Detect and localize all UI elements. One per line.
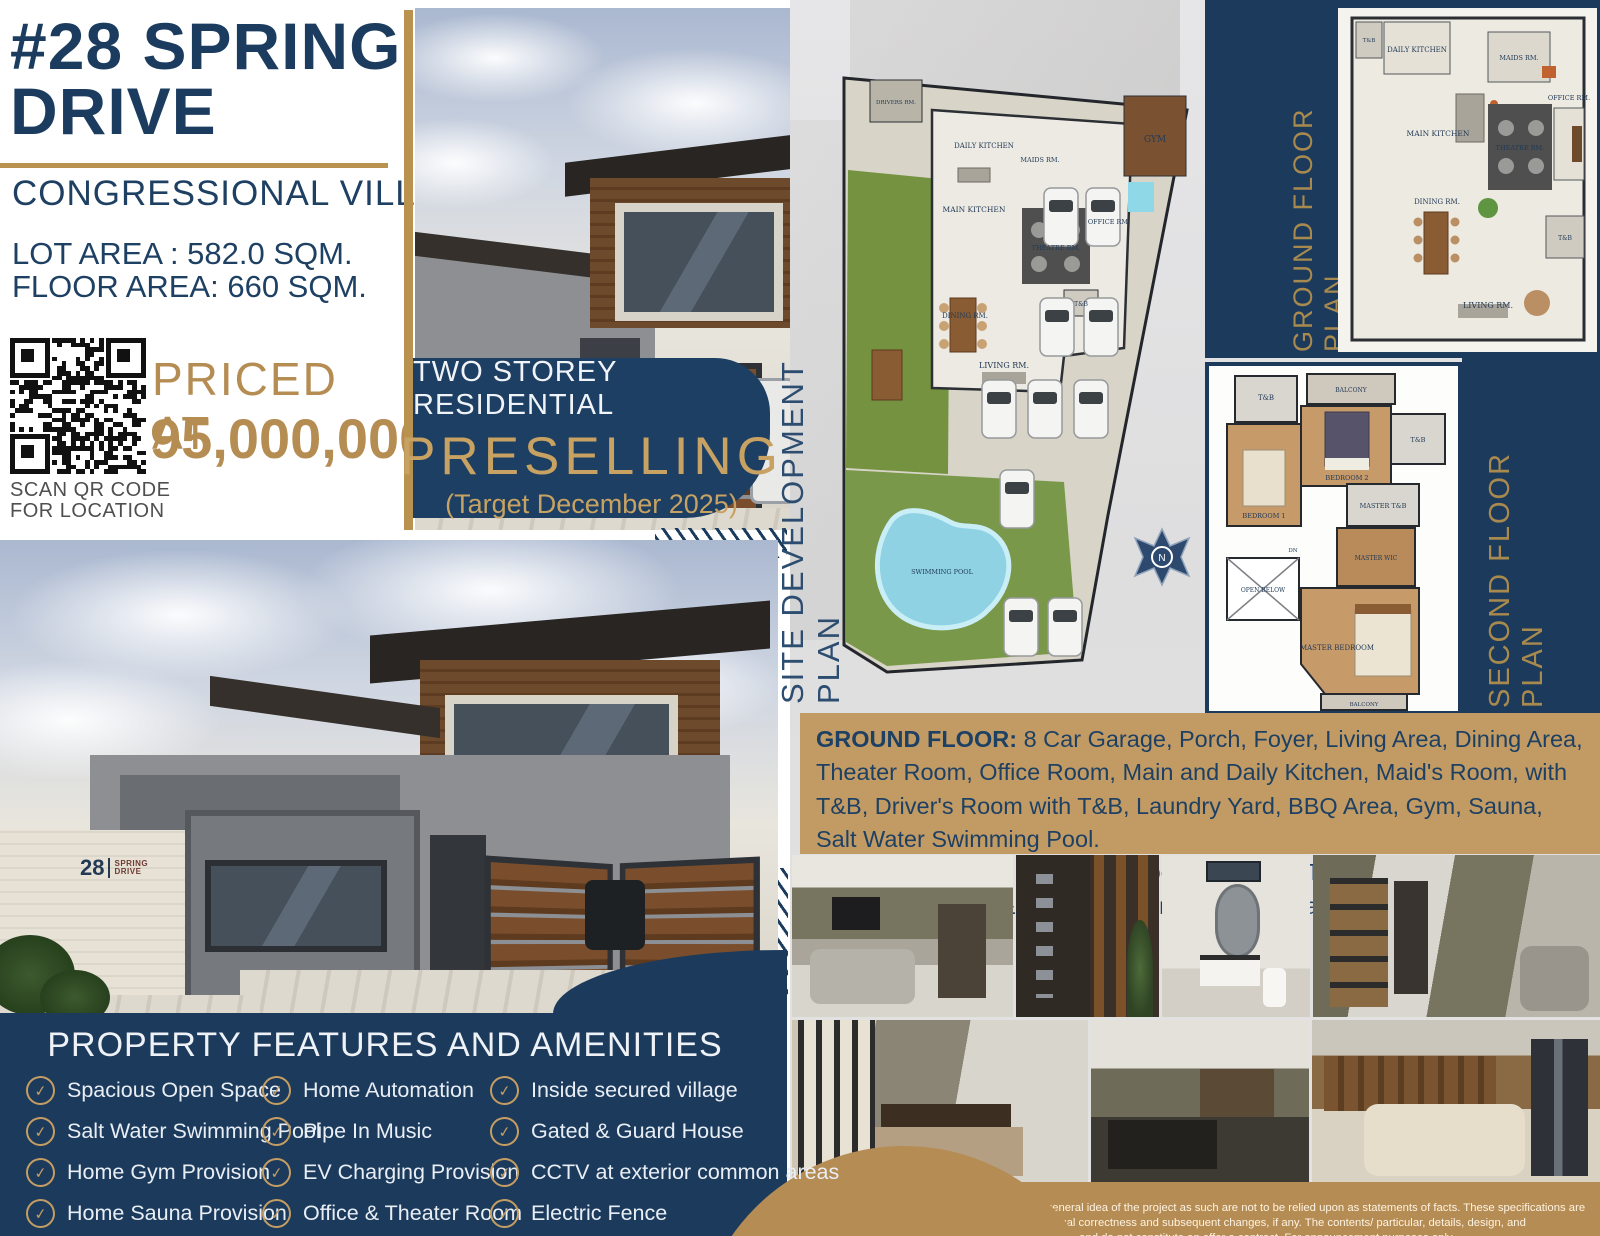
gold-divider — [0, 163, 388, 168]
sign-number: 28 — [80, 858, 110, 878]
lot-area: LOT AREA : 582.0 SQM. — [12, 238, 367, 271]
qr-caption-line2: FOR LOCATION — [10, 501, 170, 522]
interior-photo-bedroom — [1312, 1020, 1600, 1182]
feature-label: Gated & Guard House — [531, 1119, 744, 1144]
check-icon: ✓ — [261, 1157, 293, 1189]
svg-text:T&B: T&B — [1558, 235, 1572, 242]
feature-label: Pipe In Music — [303, 1119, 432, 1144]
feature-item: ✓Gated & Guard House — [490, 1117, 839, 1146]
feature-label: CCTV at exterior common areas — [531, 1160, 839, 1185]
feature-item: ✓CCTV at exterior common areas — [490, 1158, 839, 1187]
feature-label: EV Charging Provision — [303, 1160, 519, 1185]
ground-plan-frame: DAILY KITCHEN T&B MAIDS RM. MAIN KITCHEN… — [1338, 8, 1597, 352]
svg-text:MASTER BEDROOM: MASTER BEDROOM — [1300, 644, 1374, 652]
check-icon: ✓ — [489, 1157, 521, 1189]
check-icon: ✓ — [489, 1198, 521, 1230]
floors-description-box: GROUND FLOOR: 8 Car Garage, Porch, Foyer… — [800, 713, 1600, 854]
svg-text:DINING RM.: DINING RM. — [942, 312, 988, 320]
site-development-plan: N DRIVERS RM. DAILY KITCHEN MAIDS RM. MA… — [832, 50, 1194, 705]
preselling-status: PRESELLING — [400, 426, 783, 487]
house-number-sign: 28 SPRING DRIVE — [80, 858, 148, 878]
svg-text:BEDROOM 1: BEDROOM 1 — [1242, 512, 1285, 520]
interior-photo-hallway — [1313, 855, 1600, 1017]
svg-text:SWIMMING POOL: SWIMMING POOL — [911, 568, 974, 576]
site-plan-title: SITE DEVELOPMENT PLAN — [788, 328, 834, 704]
price-value: 95,000,000 — [150, 406, 405, 471]
svg-text:T&B: T&B — [1411, 436, 1426, 444]
interior-photo-bathroom — [1162, 855, 1310, 1017]
features-column-2: ✓Home Automation ✓Pipe In Music ✓EV Char… — [262, 1076, 522, 1228]
svg-text:LIVING RM.: LIVING RM. — [979, 361, 1029, 370]
feature-label: Spacious Open Space — [67, 1078, 281, 1103]
floor-area: FLOOR AREA: 660 SQM. — [12, 271, 367, 304]
qr-finder-icon — [10, 434, 50, 474]
svg-text:T&B: T&B — [1074, 301, 1088, 308]
svg-text:T&B: T&B — [1363, 38, 1376, 44]
feature-label: Home Gym Provision — [67, 1160, 270, 1185]
qr-code — [8, 336, 148, 476]
svg-text:DINING RM.: DINING RM. — [1414, 198, 1460, 206]
qr-caption-line1: SCAN QR CODE — [10, 480, 170, 501]
svg-text:BALCONY: BALCONY — [1350, 702, 1379, 708]
check-icon: ✓ — [261, 1116, 293, 1148]
check-icon: ✓ — [25, 1157, 57, 1189]
feature-label: Electric Fence — [531, 1201, 667, 1226]
check-icon: ✓ — [489, 1116, 521, 1148]
check-icon: ✓ — [489, 1075, 521, 1107]
qr-finder-icon — [106, 338, 146, 378]
feature-item: ✓EV Charging Provision — [262, 1158, 522, 1187]
svg-text:DAILY KITCHEN: DAILY KITCHEN — [1387, 46, 1447, 54]
residential-type: TWO STOREY RESIDENTIAL — [413, 356, 770, 422]
check-icon: ✓ — [25, 1075, 57, 1107]
svg-text:THEATRE RM.: THEATRE RM. — [1496, 144, 1545, 152]
title-line2: DRIVE — [10, 79, 402, 144]
feature-item: ✓Pipe In Music — [262, 1117, 522, 1146]
svg-text:LIVING RM.: LIVING RM. — [1463, 301, 1513, 310]
svg-text:GYM: GYM — [1144, 135, 1166, 145]
svg-text:THEATRE RM.: THEATRE RM. — [1032, 244, 1081, 252]
features-heading: PROPERTY FEATURES AND AMENITIES — [0, 1026, 770, 1065]
svg-text:MAIN KITCHEN: MAIN KITCHEN — [1407, 129, 1470, 138]
interior-photo-kitchen — [1091, 1020, 1309, 1182]
compass-icon: N — [1135, 529, 1189, 585]
check-icon: ✓ — [261, 1198, 293, 1230]
svg-text:MAIDS RM.: MAIDS RM. — [1020, 156, 1059, 164]
flyer: #28 SPRING DRIVE CONGRESSIONAL VILLAGE L… — [0, 0, 1600, 1236]
second-plan-title: SECOND FLOOR PLAN — [1494, 382, 1540, 708]
area-specs: LOT AREA : 582.0 SQM. FLOOR AREA: 660 SQ… — [12, 238, 367, 304]
interior-photo-grid — [792, 855, 1600, 1182]
check-icon: ✓ — [25, 1198, 57, 1230]
exterior-render-main: 28 SPRING DRIVE — [0, 540, 778, 1013]
feature-item: ✓Office & Theater Room — [262, 1199, 522, 1228]
svg-text:MASTER T&B: MASTER T&B — [1360, 502, 1407, 510]
check-icon: ✓ — [261, 1075, 293, 1107]
svg-text:BALCONY: BALCONY — [1335, 387, 1367, 394]
interior-photo-living — [792, 855, 1013, 1017]
svg-text:DRIVERS RM.: DRIVERS RM. — [876, 100, 916, 106]
check-icon: ✓ — [25, 1116, 57, 1148]
ground-floor-plan: DAILY KITCHEN T&B MAIDS RM. MAIN KITCHEN… — [1338, 8, 1597, 352]
feature-label: Inside secured village — [531, 1078, 738, 1103]
svg-text:OPEN BELOW: OPEN BELOW — [1241, 587, 1286, 594]
feature-label: Home Automation — [303, 1078, 474, 1103]
feature-item: ✓Inside secured village — [490, 1076, 839, 1105]
svg-text:OFFICE RM.: OFFICE RM. — [1088, 218, 1130, 226]
title-line1: #28 SPRING — [10, 14, 402, 79]
feature-label: Home Sauna Provision — [67, 1201, 287, 1226]
interior-photo-door — [1016, 855, 1159, 1017]
svg-text:N: N — [1158, 553, 1165, 564]
svg-text:BEDROOM 2: BEDROOM 2 — [1325, 474, 1368, 482]
svg-text:MAIN KITCHEN: MAIN KITCHEN — [943, 205, 1006, 214]
second-floor-plan: T&B BALCONY BEDROOM 2 T&B BEDROOM 1 MAST… — [1209, 366, 1458, 711]
ground-floor-label: GROUND FLOOR: — [816, 726, 1017, 752]
svg-text:OFFICE RM.: OFFICE RM. — [1548, 94, 1590, 102]
page-title: #28 SPRING DRIVE — [10, 14, 402, 143]
qr-caption: SCAN QR CODE FOR LOCATION — [10, 480, 170, 522]
features-column-3: ✓Inside secured village ✓Gated & Guard H… — [490, 1076, 839, 1228]
svg-text:MAIDS RM.: MAIDS RM. — [1499, 54, 1538, 62]
feature-item: ✓Home Automation — [262, 1076, 522, 1105]
svg-text:T&B: T&B — [1258, 394, 1274, 402]
qr-finder-icon — [10, 338, 50, 378]
ground-plan-title: GROUND FLOOR PLAN — [1297, 36, 1341, 352]
svg-text:MASTER WIC: MASTER WIC — [1355, 555, 1398, 562]
svg-text:DN: DN — [1288, 548, 1297, 554]
feature-item: ✓Electric Fence — [490, 1199, 839, 1228]
sign-street: SPRING DRIVE — [114, 860, 148, 876]
second-plan-frame: T&B BALCONY BEDROOM 2 T&B BEDROOM 1 MAST… — [1205, 362, 1462, 715]
preselling-banner: TWO STOREY RESIDENTIAL PRESELLING (Targe… — [413, 358, 770, 518]
preselling-target: (Target December 2025) — [445, 489, 738, 520]
svg-text:DAILY KITCHEN: DAILY KITCHEN — [954, 142, 1014, 150]
